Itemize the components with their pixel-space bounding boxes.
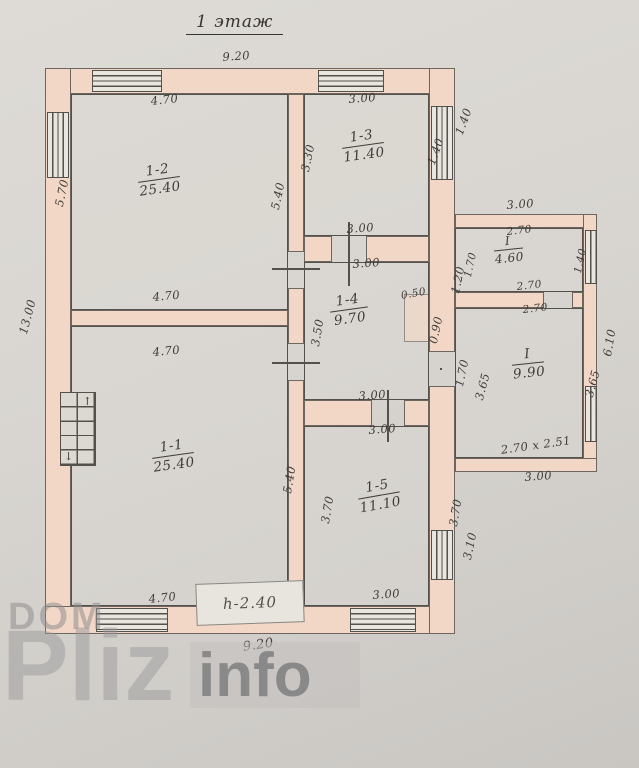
- dimension-label: 9.20: [222, 48, 251, 64]
- room-1-3: [304, 94, 429, 236]
- watermark-info: info: [198, 645, 312, 707]
- room-label-1-5: 1-5 11.10: [355, 475, 402, 517]
- dimension-label: 3.10: [460, 531, 479, 561]
- room-label-annex-bottom: I 9.90: [510, 344, 546, 382]
- dimension-label: 3.00: [506, 196, 535, 212]
- dimension-label: 3.00: [524, 468, 553, 484]
- room-1-2: [71, 94, 288, 310]
- wall-center-vertical: [288, 94, 304, 252]
- dimension-label: 13.00: [16, 298, 39, 336]
- dimension-label: 3.00: [346, 220, 375, 236]
- window-hatch: [92, 70, 162, 92]
- dimension-label: 3.00: [348, 90, 377, 106]
- window-hatch: [350, 608, 416, 632]
- wall-room14-room15: [304, 400, 372, 426]
- arrow-up-icon: ↑: [83, 395, 92, 408]
- wall-room13-room14: [304, 236, 332, 262]
- room-area: 4.60: [494, 248, 525, 266]
- room-area: 9.90: [512, 362, 546, 382]
- dimension-label: 3.00: [352, 255, 381, 271]
- room-label-1-1: 1-1 25.40: [150, 435, 196, 475]
- window-hatch: [47, 112, 69, 178]
- arrow-down-icon: ↓: [64, 450, 73, 463]
- room-label-1-2: 1-2 25.40: [136, 159, 182, 199]
- page-title: 1 этаж: [186, 12, 283, 35]
- floorplan-photo: 1 этаж ↑ ↓ 1-2 25.40: [0, 0, 639, 768]
- wall-room12-room11: [71, 310, 288, 326]
- door-mark: [440, 368, 442, 370]
- room-label-1-4: 1-4 9.70: [328, 290, 370, 330]
- dimension-label: 3.00: [372, 586, 401, 602]
- dimension-label: 6.10: [600, 328, 619, 358]
- wall-room14-room15: [404, 400, 429, 426]
- room-label-1-3: 1-3 11.40: [340, 125, 386, 165]
- door-mark: [272, 362, 320, 364]
- dimension-label: 3.00: [368, 421, 397, 437]
- wall-center-vertical: [288, 288, 304, 344]
- dimension-label: 4.70: [148, 589, 177, 606]
- window-hatch: [431, 530, 453, 580]
- dimension-label: 3.00: [358, 387, 387, 403]
- dimension-label: 4.70: [152, 343, 181, 359]
- dimension-label: 4.70: [152, 288, 181, 304]
- wall-annex-divider: [572, 292, 583, 308]
- watermark-pliz: Pliz: [2, 616, 174, 716]
- stove-icon: ↑ ↓: [60, 392, 96, 466]
- height-note-stamp: h-2.40: [195, 580, 304, 626]
- door-mark: [272, 268, 320, 270]
- window-hatch: [318, 70, 384, 92]
- dimension-label: 4.70: [150, 91, 179, 108]
- dimension-label: 1.40: [452, 106, 475, 137]
